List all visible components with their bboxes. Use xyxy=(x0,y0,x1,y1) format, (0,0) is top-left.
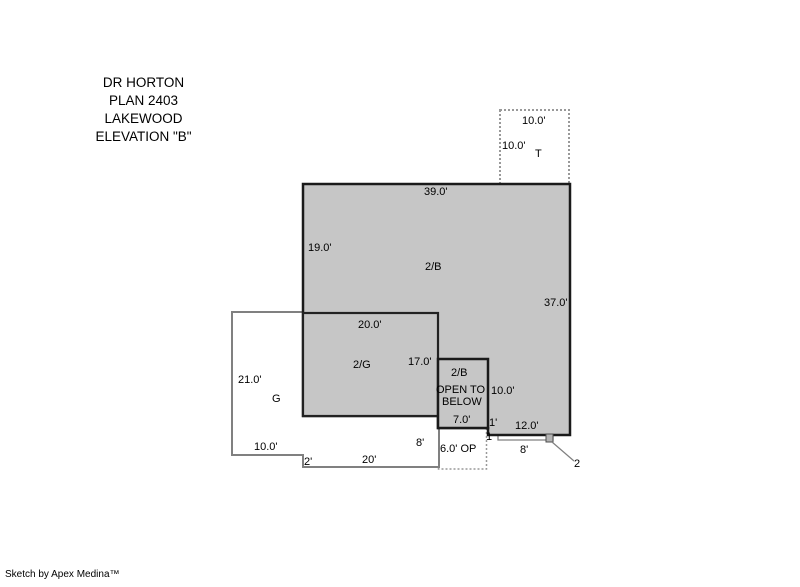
dim-garage-left: 21.0' xyxy=(238,375,262,386)
plan-number: PLAN 2403 xyxy=(56,92,231,110)
dim-garage-upper-right: 17.0' xyxy=(408,357,432,368)
dim-garage-bottom-left: 10.0' xyxy=(254,442,278,453)
dim-tub-left: 10.0' xyxy=(502,141,526,152)
marker-leader-line xyxy=(552,442,574,461)
dim-entry-step-down: 1' xyxy=(489,418,497,429)
dim-open-below-bottom: 7.0' xyxy=(453,415,470,426)
area-label-open-porch: 6.0' OP xyxy=(440,444,476,455)
plan-name: LAKEWOOD xyxy=(56,110,231,128)
plan-builder: DR HORTON xyxy=(56,74,231,92)
dim-garage-bottom: 20' xyxy=(362,455,376,466)
floorplan-sketch-page: DR HORTON PLAN 2403 LAKEWOOD ELEVATION "… xyxy=(0,0,800,587)
dim-open-below-right: 10.0' xyxy=(491,386,515,397)
area-label-upper: 2/B xyxy=(425,262,442,273)
sketch-credit: Sketch by Apex Medina™ xyxy=(5,569,120,581)
entry-step-bump xyxy=(546,434,553,442)
dim-entry-step-depth: 1 xyxy=(486,432,492,443)
area-label-open-below-2: OPEN TO xyxy=(436,385,485,396)
dim-entry-bottom: 12.0' xyxy=(515,421,539,432)
area-label-garage: G xyxy=(272,394,281,405)
dim-garage-right: 8' xyxy=(416,438,424,449)
dim-garage-upper-top: 20.0' xyxy=(358,320,382,331)
area-label-open-below-3: BELOW xyxy=(442,397,482,408)
dim-upper-right: 37.0' xyxy=(544,298,568,309)
dim-tub-top: 10.0' xyxy=(522,116,546,127)
entry-marker: 2 xyxy=(574,459,580,470)
dim-upper-top: 39.0' xyxy=(424,187,448,198)
dim-entry-porch-width: 8' xyxy=(520,445,528,456)
area-label-garage-upper: 2/G xyxy=(353,360,371,371)
area-label-open-below-1: 2/B xyxy=(451,368,468,379)
plan-title-block: DR HORTON PLAN 2403 LAKEWOOD ELEVATION "… xyxy=(56,74,231,146)
plan-elevation: ELEVATION "B" xyxy=(56,128,231,146)
area-label-tub: T xyxy=(535,149,542,160)
dim-upper-left: 19.0' xyxy=(308,243,332,254)
dim-garage-step: 2' xyxy=(304,457,312,468)
